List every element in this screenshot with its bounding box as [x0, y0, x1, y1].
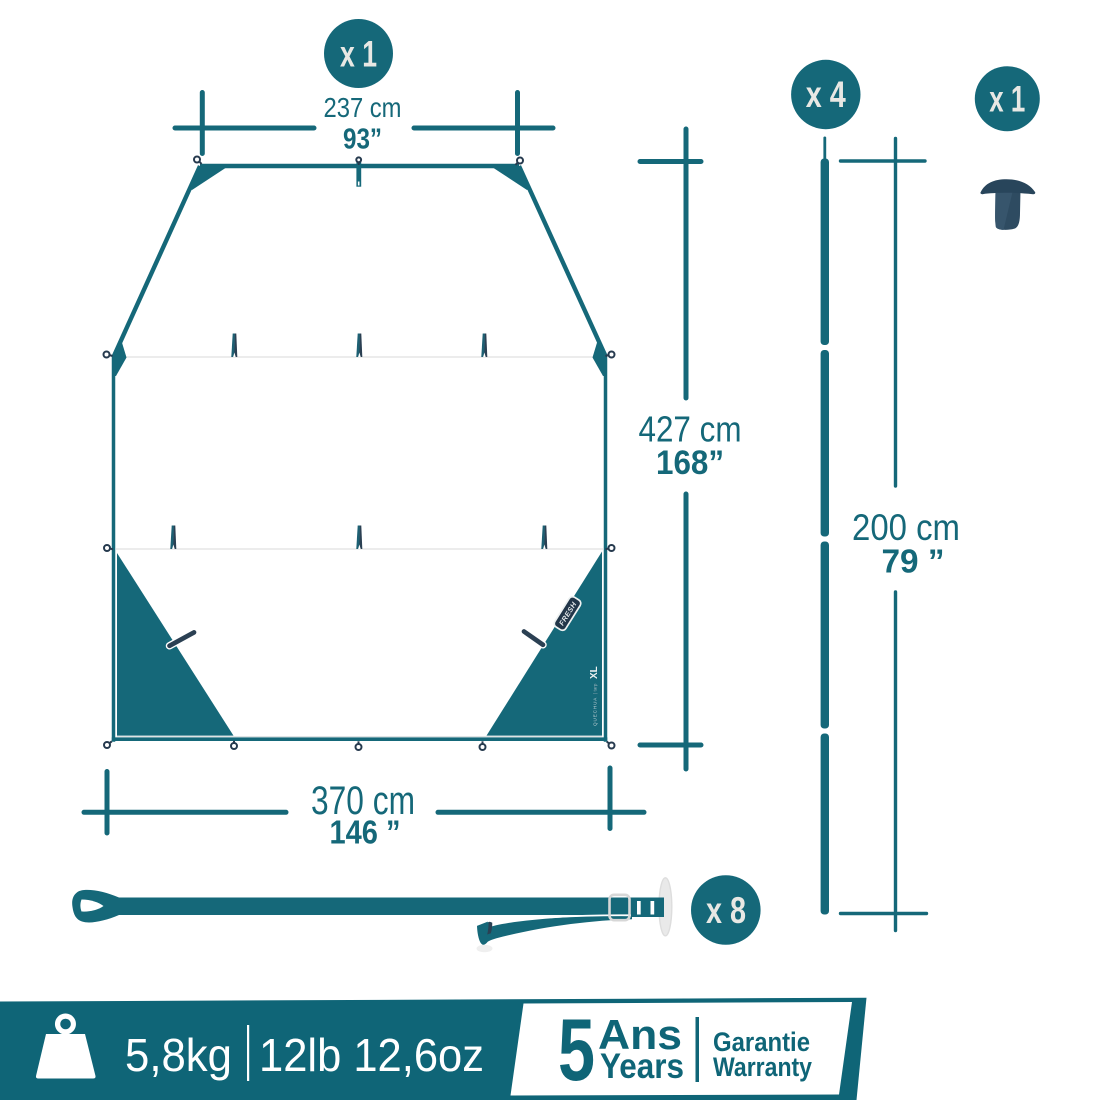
- svg-text:146 ”: 146 ”: [330, 814, 401, 851]
- svg-text:5,8kg: 5,8kg: [125, 1029, 232, 1081]
- svg-text:QUECHUA: QUECHUA: [593, 697, 598, 726]
- svg-text:x 4: x 4: [806, 74, 846, 115]
- svg-text:237 cm: 237 cm: [324, 92, 402, 123]
- svg-text:x 1: x 1: [340, 34, 377, 75]
- svg-text:Warranty: Warranty: [713, 1052, 812, 1082]
- svg-text:x 8: x 8: [706, 890, 746, 931]
- svg-text:XL: XL: [589, 666, 600, 679]
- svg-text:x 1: x 1: [989, 79, 1025, 120]
- svg-text:168”: 168”: [656, 444, 724, 482]
- svg-text:5: 5: [558, 1000, 595, 1099]
- svg-text:93”: 93”: [343, 124, 382, 156]
- svg-text:12lb 12,6oz: 12lb 12,6oz: [259, 1029, 484, 1081]
- svg-text:| tarp: | tarp: [593, 683, 598, 694]
- svg-text:Years: Years: [600, 1047, 684, 1086]
- svg-text:79 ”: 79 ”: [882, 543, 945, 580]
